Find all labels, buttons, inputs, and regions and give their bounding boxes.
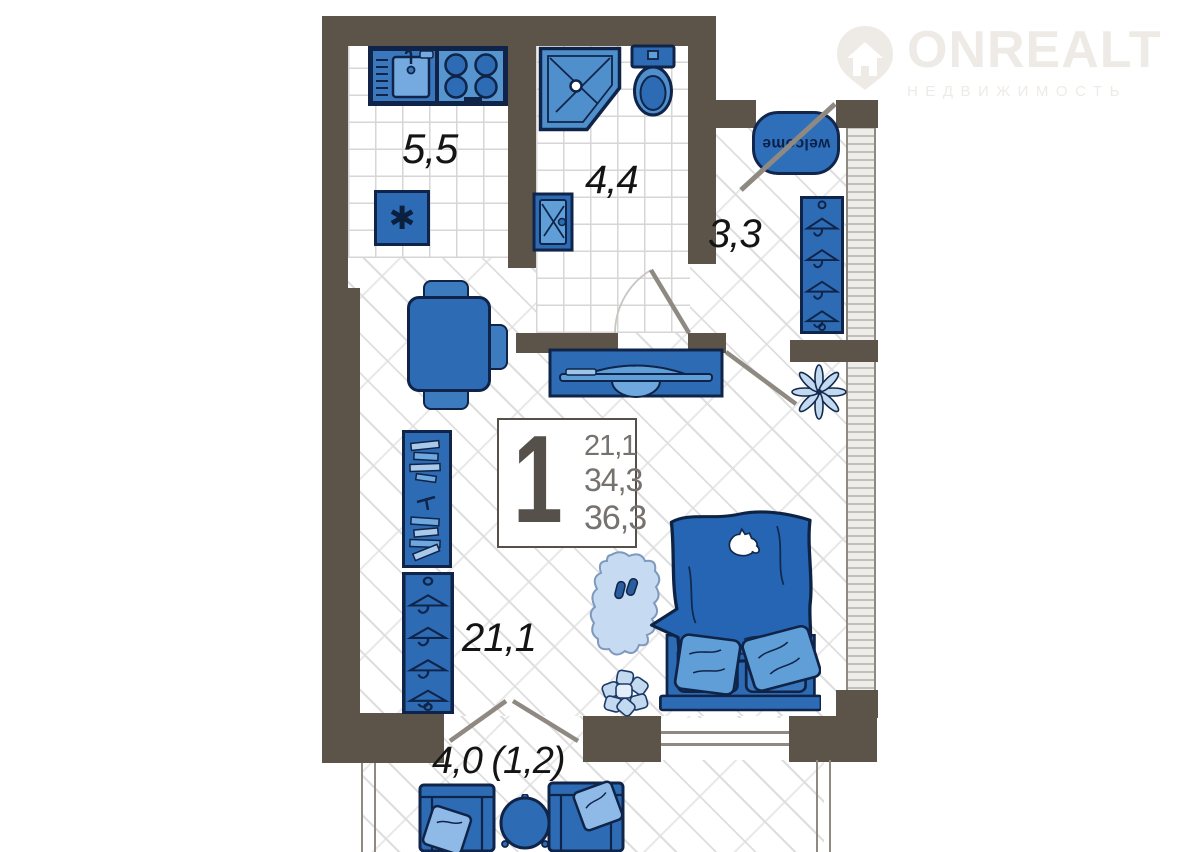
window [661,718,789,760]
room-label-bathroom: 4,4 [585,160,638,200]
window-glass-line [661,731,789,734]
plant-icon [789,362,851,422]
hall-wardrobe-icon [800,196,844,334]
total-area-value: 36,3 [584,499,646,537]
bed-icon [645,506,821,714]
unit-info-box: 1 21,1 34,3 36,3 [497,418,637,548]
snowflake-glyph: ✱ [389,199,416,237]
balcony-armchair-icon [417,782,497,852]
wall-segment-bottom-right [789,716,877,762]
wall-segment-hall-top-left [692,100,756,128]
living-area-value: 21,1 [584,430,646,463]
room-label-hallway: 3,3 [708,214,761,254]
wall-segment-left-upper [322,16,348,290]
balcony-table-icon [499,794,551,852]
dining-table-icon [407,296,491,392]
kitchen-sink-stove-icon [368,46,508,106]
wall-segment-bottom-mid [583,716,661,762]
wall-segment-left-lower [322,288,360,718]
balcony-armchair-icon [546,780,626,852]
area-value: 34,3 [584,463,646,499]
living-wardrobe-icon [402,572,454,714]
tv-stand-icon [548,348,724,398]
balcony-railing-left [361,763,376,852]
logo-brand-text: ONREALT [907,24,1161,76]
shower-icon [538,46,622,132]
onrealt-logo: ONREALT НЕДВИЖИМОСТЬ [835,24,1175,124]
welcome-mat: welcome [752,111,840,175]
house-pin-icon [835,24,895,92]
plant-icon [597,667,653,717]
balcony-railing-right [816,760,831,852]
wall-segment-entry-right [836,100,878,128]
wall-segment-hall-divider [790,340,878,362]
wall-segment-bottom-left [322,713,444,763]
room-label-kitchen: 5,5 [402,128,457,170]
fridge-icon: ✱ [374,190,430,246]
toilet-icon [630,44,676,118]
room-label-balcony: 4,0 (1,2) [432,742,565,780]
wall-segment-band-cap [836,690,878,718]
floor-plan-image: ONREALT НЕДВИЖИМОСТЬ [0,0,1202,852]
room-label-living: 21,1 [462,618,536,658]
logo-subtitle-text: НЕДВИЖИМОСТЬ [907,83,1161,100]
rooms-count: 1 [513,430,563,538]
pillow-icon [674,634,741,696]
bookshelf-icon [402,430,452,568]
welcome-mat-text: welcome [762,134,830,152]
window-glass-line [661,743,789,746]
washbasin-icon [532,192,574,252]
